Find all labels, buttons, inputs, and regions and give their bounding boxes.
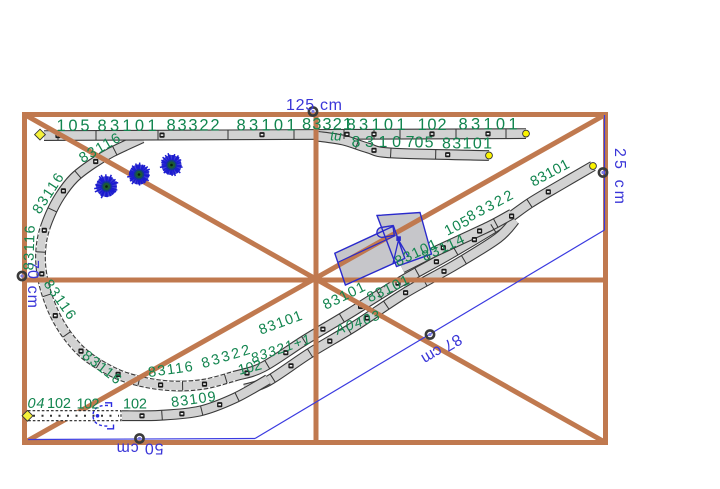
- svg-text:25 cm: 25 cm: [611, 148, 628, 204]
- svg-text:83101: 83101: [98, 117, 157, 135]
- svg-text:102: 102: [418, 116, 447, 134]
- svg-text:102: 102: [77, 397, 100, 413]
- svg-text:83116: 83116: [147, 359, 194, 381]
- svg-text:125 cm: 125 cm: [286, 97, 342, 114]
- svg-text:05: 05: [415, 135, 434, 152]
- svg-text:83116: 83116: [79, 348, 124, 388]
- svg-text:83101: 83101: [347, 116, 406, 134]
- svg-text:04: 04: [28, 396, 45, 412]
- svg-text:83321: 83321: [302, 116, 352, 134]
- svg-text:102: 102: [47, 396, 71, 412]
- svg-text:83101: 83101: [459, 116, 518, 134]
- svg-text:50 cm: 50 cm: [117, 440, 164, 457]
- svg-text:83101: 83101: [442, 136, 492, 153]
- svg-text:83116: 83116: [21, 225, 39, 271]
- svg-text:83322: 83322: [167, 117, 220, 135]
- svg-text:tu: tu: [330, 128, 342, 144]
- svg-text:102: 102: [123, 397, 147, 413]
- svg-text:83101: 83101: [237, 117, 296, 135]
- svg-text:105: 105: [57, 117, 90, 135]
